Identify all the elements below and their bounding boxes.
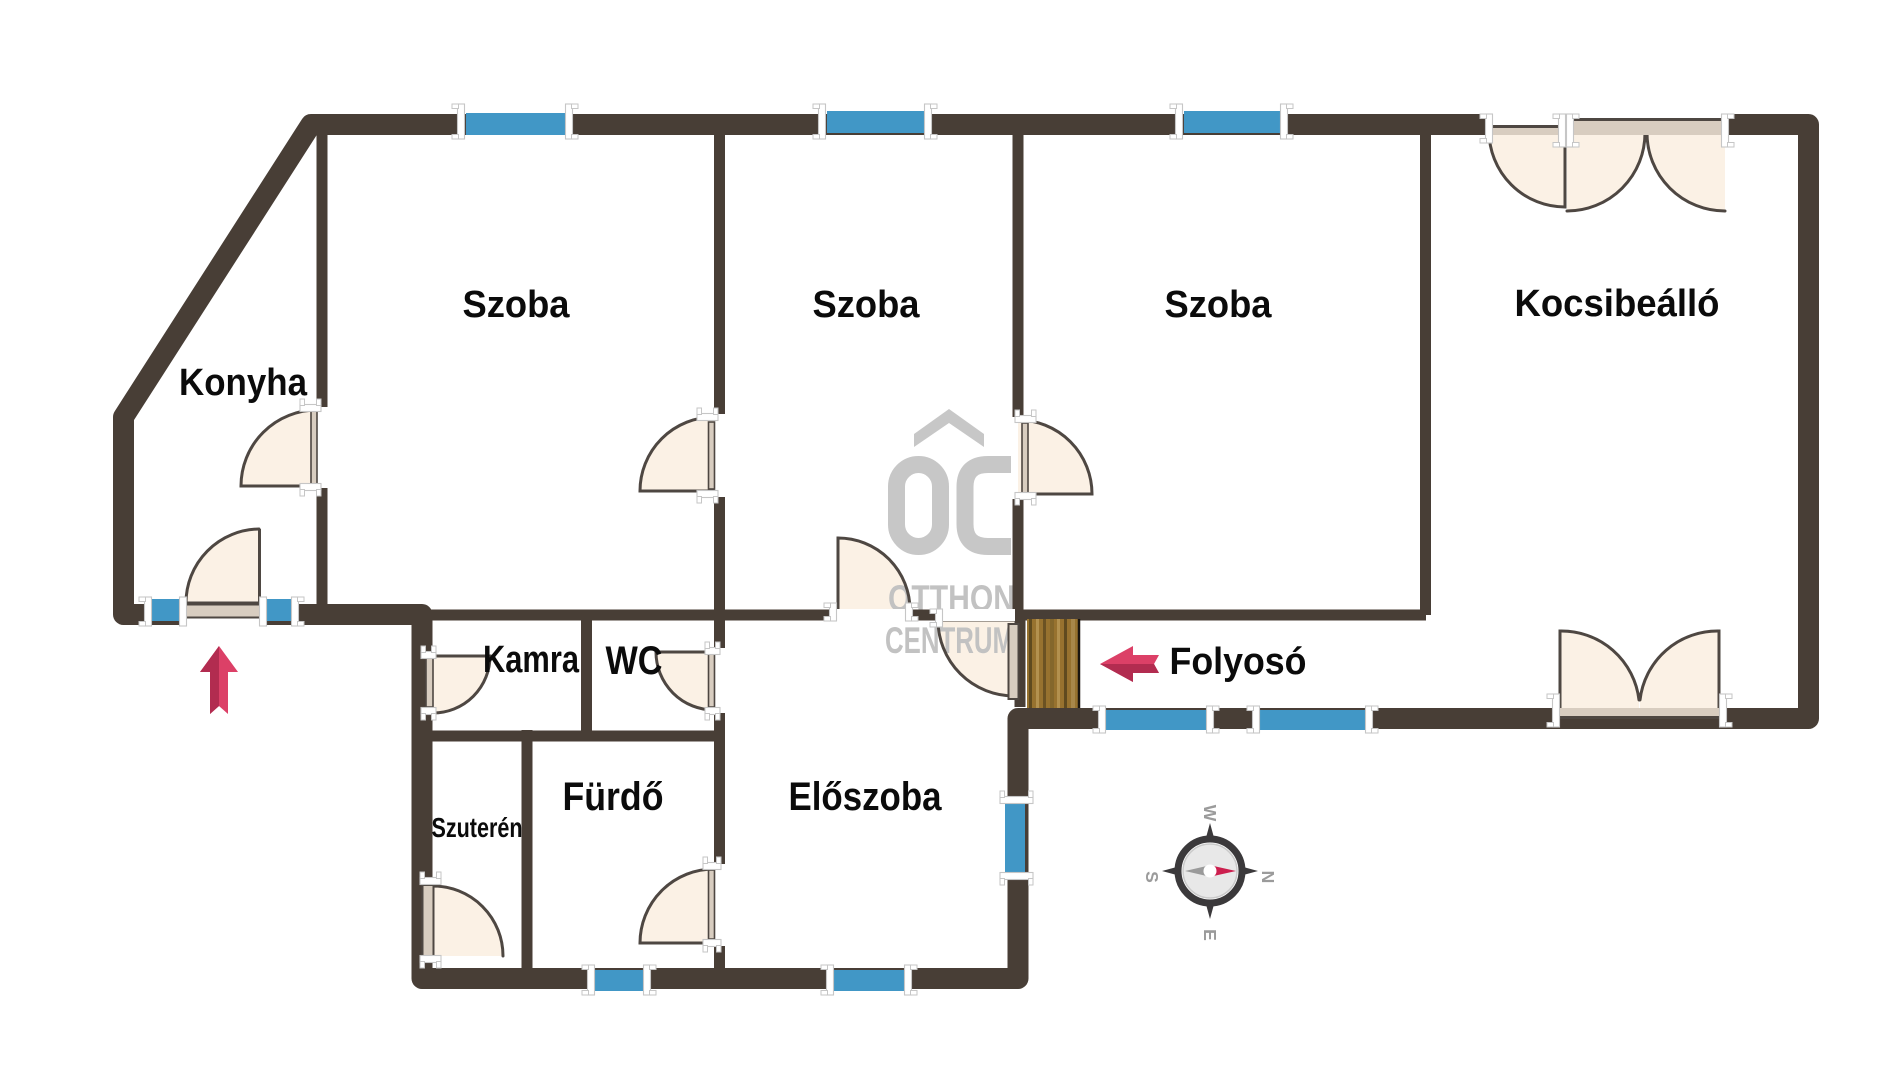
svg-text:Folyosó: Folyosó [1170, 641, 1307, 683]
svg-text:N: N [1258, 871, 1278, 884]
svg-text:Előszoba: Előszoba [789, 775, 943, 819]
svg-text:Szoba: Szoba [463, 284, 571, 326]
svg-text:Kocsibeálló: Kocsibeálló [1515, 283, 1720, 325]
svg-text:W: W [1200, 805, 1220, 822]
svg-text:Kamra: Kamra [483, 639, 580, 681]
svg-text:CENTRUM: CENTRUM [885, 620, 1014, 661]
svg-text:WC: WC [606, 639, 663, 683]
svg-text:Konyha: Konyha [179, 362, 308, 404]
svg-text:Szuterén: Szuterén [432, 812, 523, 843]
svg-text:Szoba: Szoba [813, 284, 921, 326]
svg-text:E: E [1200, 929, 1220, 941]
svg-text:S: S [1142, 871, 1162, 883]
svg-text:Szoba: Szoba [1165, 284, 1273, 326]
svg-text:Fürdő: Fürdő [563, 775, 664, 819]
